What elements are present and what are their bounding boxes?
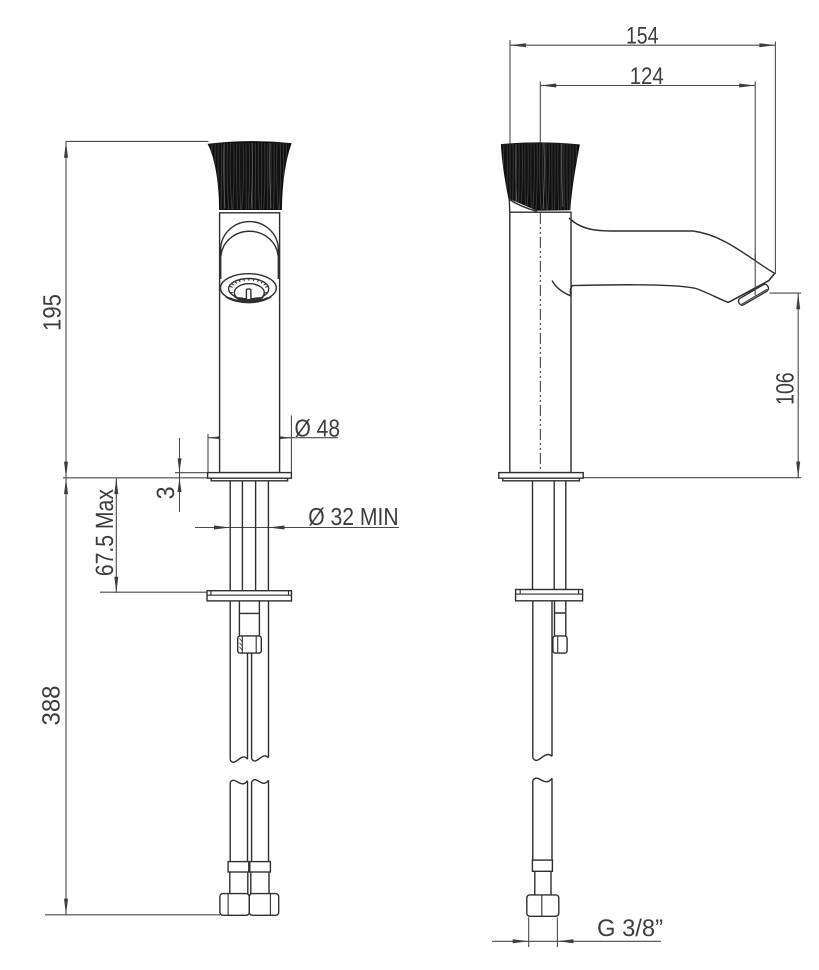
svg-text:G 3/8”: G 3/8” (597, 915, 663, 942)
svg-text:154: 154 (626, 23, 659, 50)
svg-text:388: 388 (38, 686, 66, 726)
svg-text:124: 124 (630, 63, 664, 90)
svg-text:Ø 32 MIN: Ø 32 MIN (308, 504, 399, 531)
svg-text:67.5 Max: 67.5 Max (91, 489, 119, 576)
svg-text:195: 195 (39, 294, 67, 331)
svg-text:106: 106 (772, 372, 800, 405)
svg-text:Ø 48: Ø 48 (295, 415, 341, 442)
svg-text:3: 3 (152, 486, 180, 499)
